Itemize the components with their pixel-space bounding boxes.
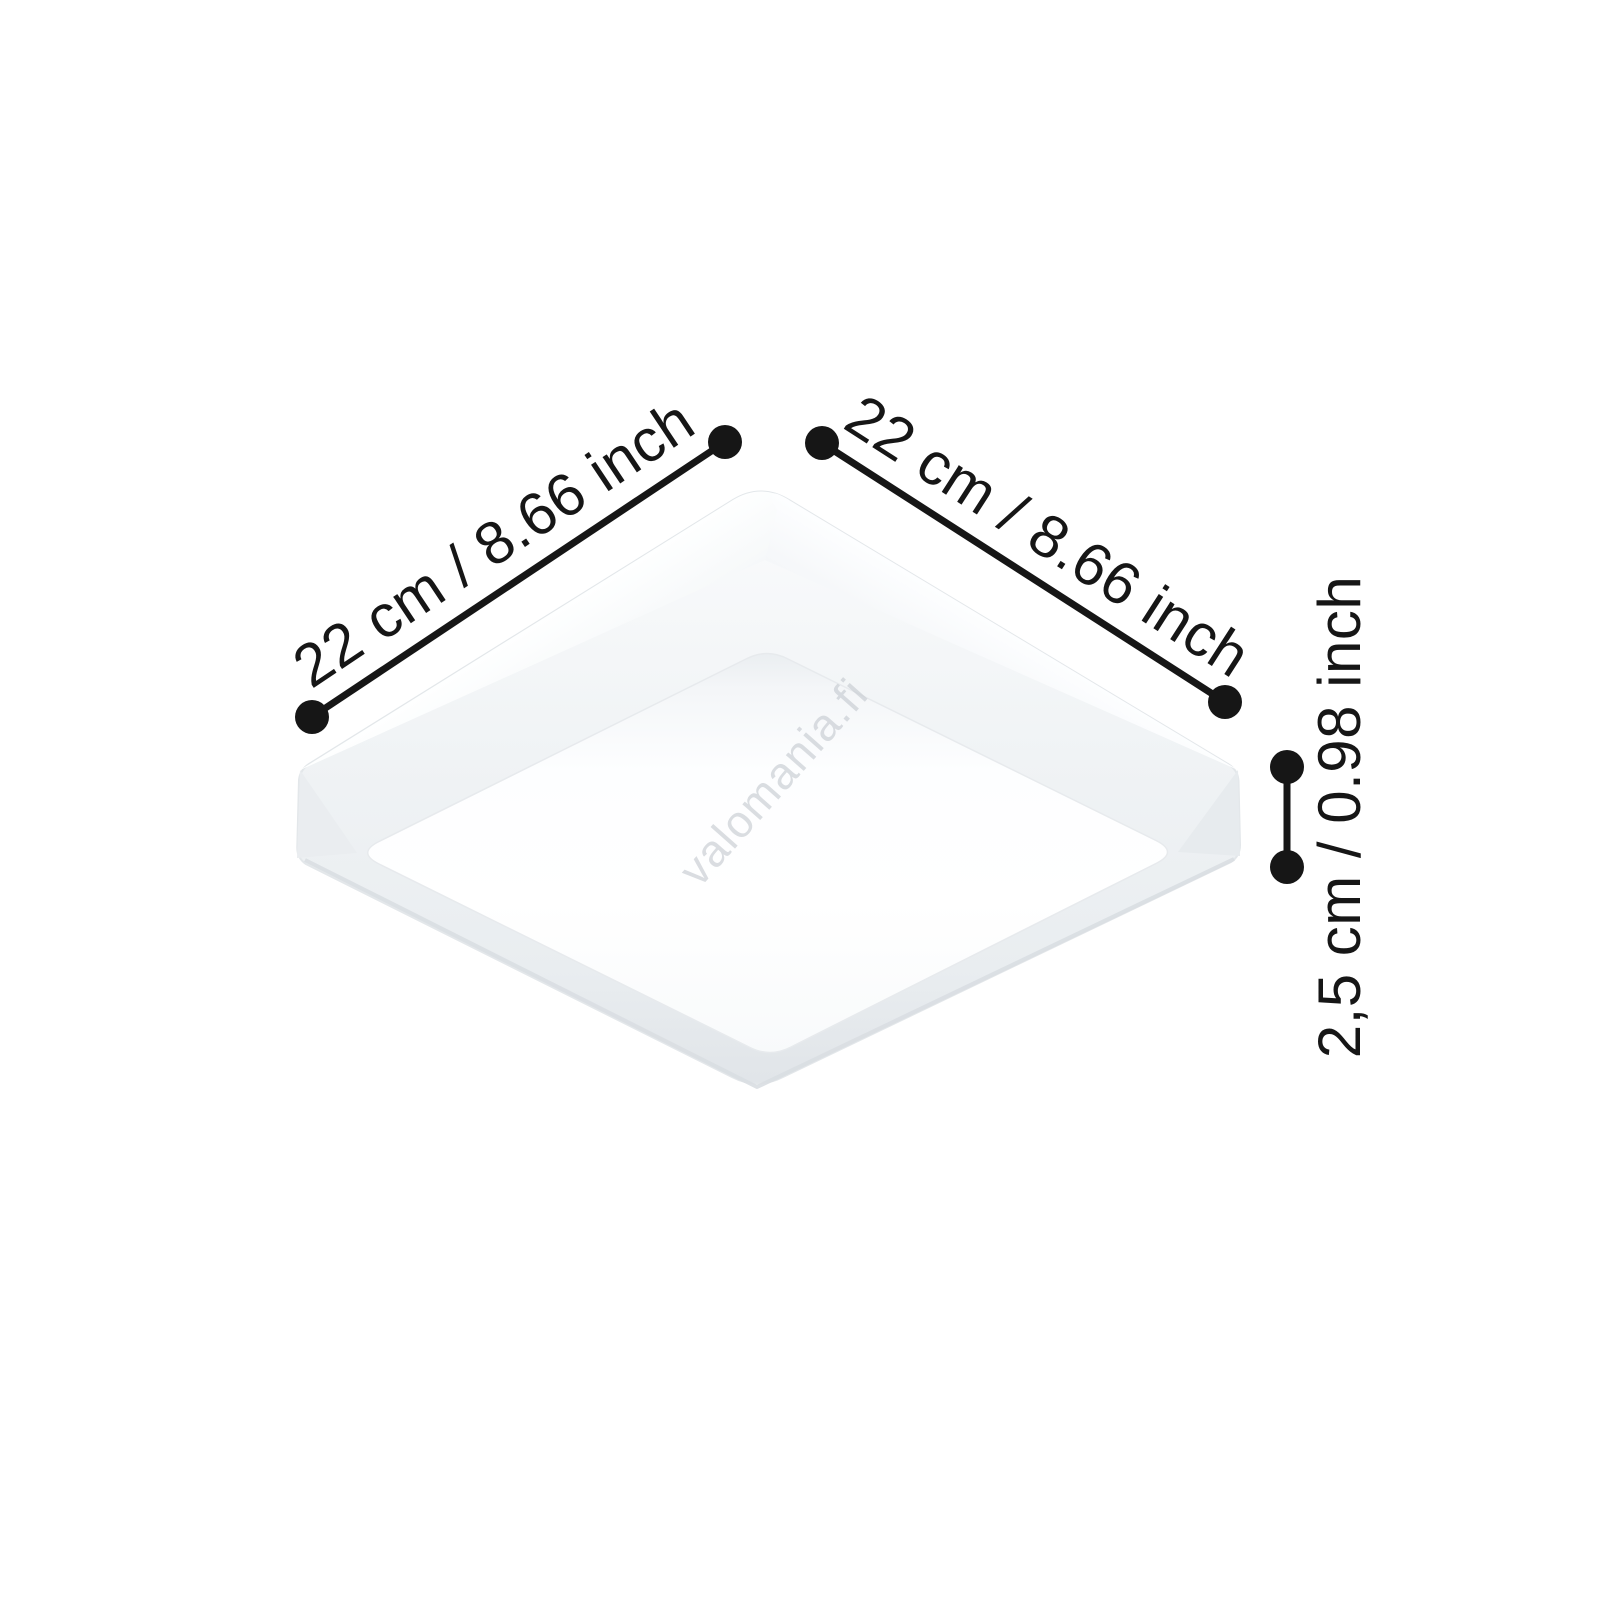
dimension-endpoint-dot bbox=[295, 700, 329, 734]
dimension-endpoint-dot bbox=[708, 425, 742, 459]
dimension-endpoint-dot bbox=[1270, 850, 1304, 884]
diagram-canvas: valomania.fi 22 cm / 8.66 inch 22 cm / 8… bbox=[0, 0, 1600, 1600]
dimension-endpoint-dot bbox=[1208, 685, 1242, 719]
dimension-height: 2,5 cm / 0.98 inch bbox=[1270, 576, 1373, 1059]
dimension-label: 2,5 cm / 0.98 inch bbox=[1306, 576, 1373, 1059]
dimension-endpoint-dot bbox=[805, 426, 839, 460]
dimension-endpoint-dot bbox=[1270, 750, 1304, 784]
product-dimension-diagram: valomania.fi 22 cm / 8.66 inch 22 cm / 8… bbox=[0, 0, 1600, 1600]
